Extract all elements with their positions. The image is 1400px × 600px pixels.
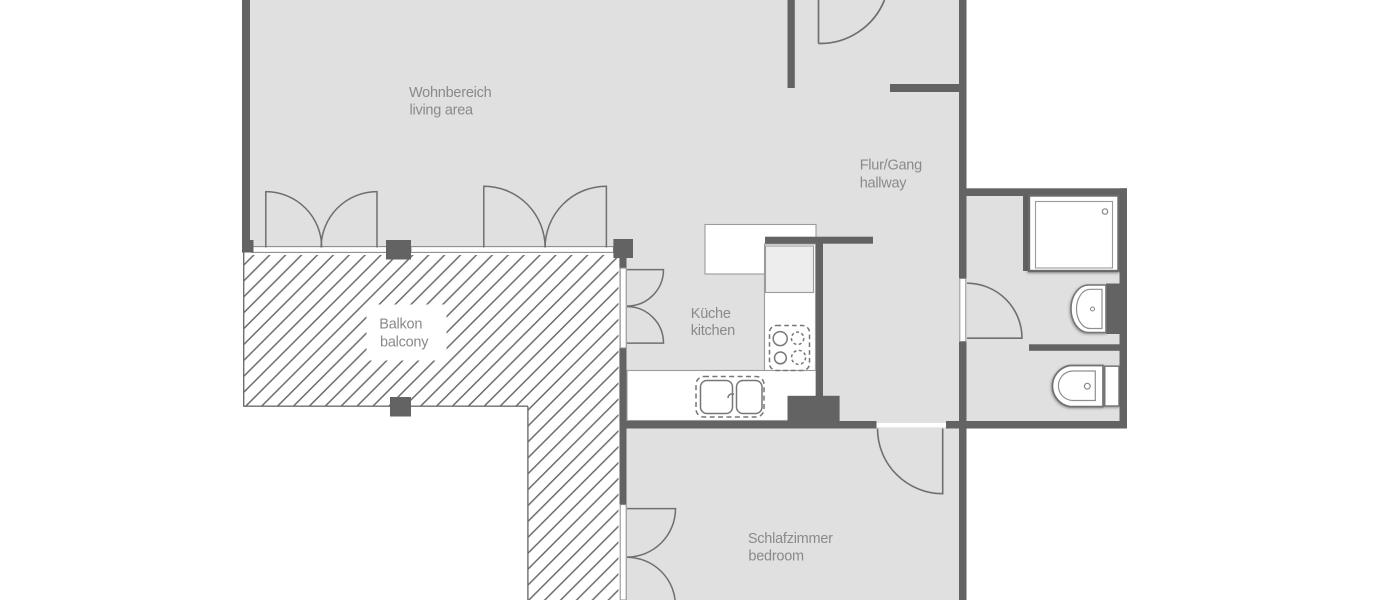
svg-text:Schlafzimmer: Schlafzimmer — [748, 531, 833, 547]
svg-text:bedroom: bedroom — [748, 549, 804, 565]
svg-text:Flur/Gang: Flur/Gang — [860, 158, 922, 174]
svg-text:Küche: Küche — [691, 306, 731, 322]
svg-text:kitchen: kitchen — [691, 323, 735, 339]
svg-text:Wohnbereich: Wohnbereich — [409, 85, 492, 101]
svg-text:hallway: hallway — [860, 176, 908, 192]
svg-text:Balkon: Balkon — [379, 317, 422, 333]
svg-text:balcony: balcony — [380, 334, 429, 350]
svg-text:living area: living area — [410, 103, 475, 119]
